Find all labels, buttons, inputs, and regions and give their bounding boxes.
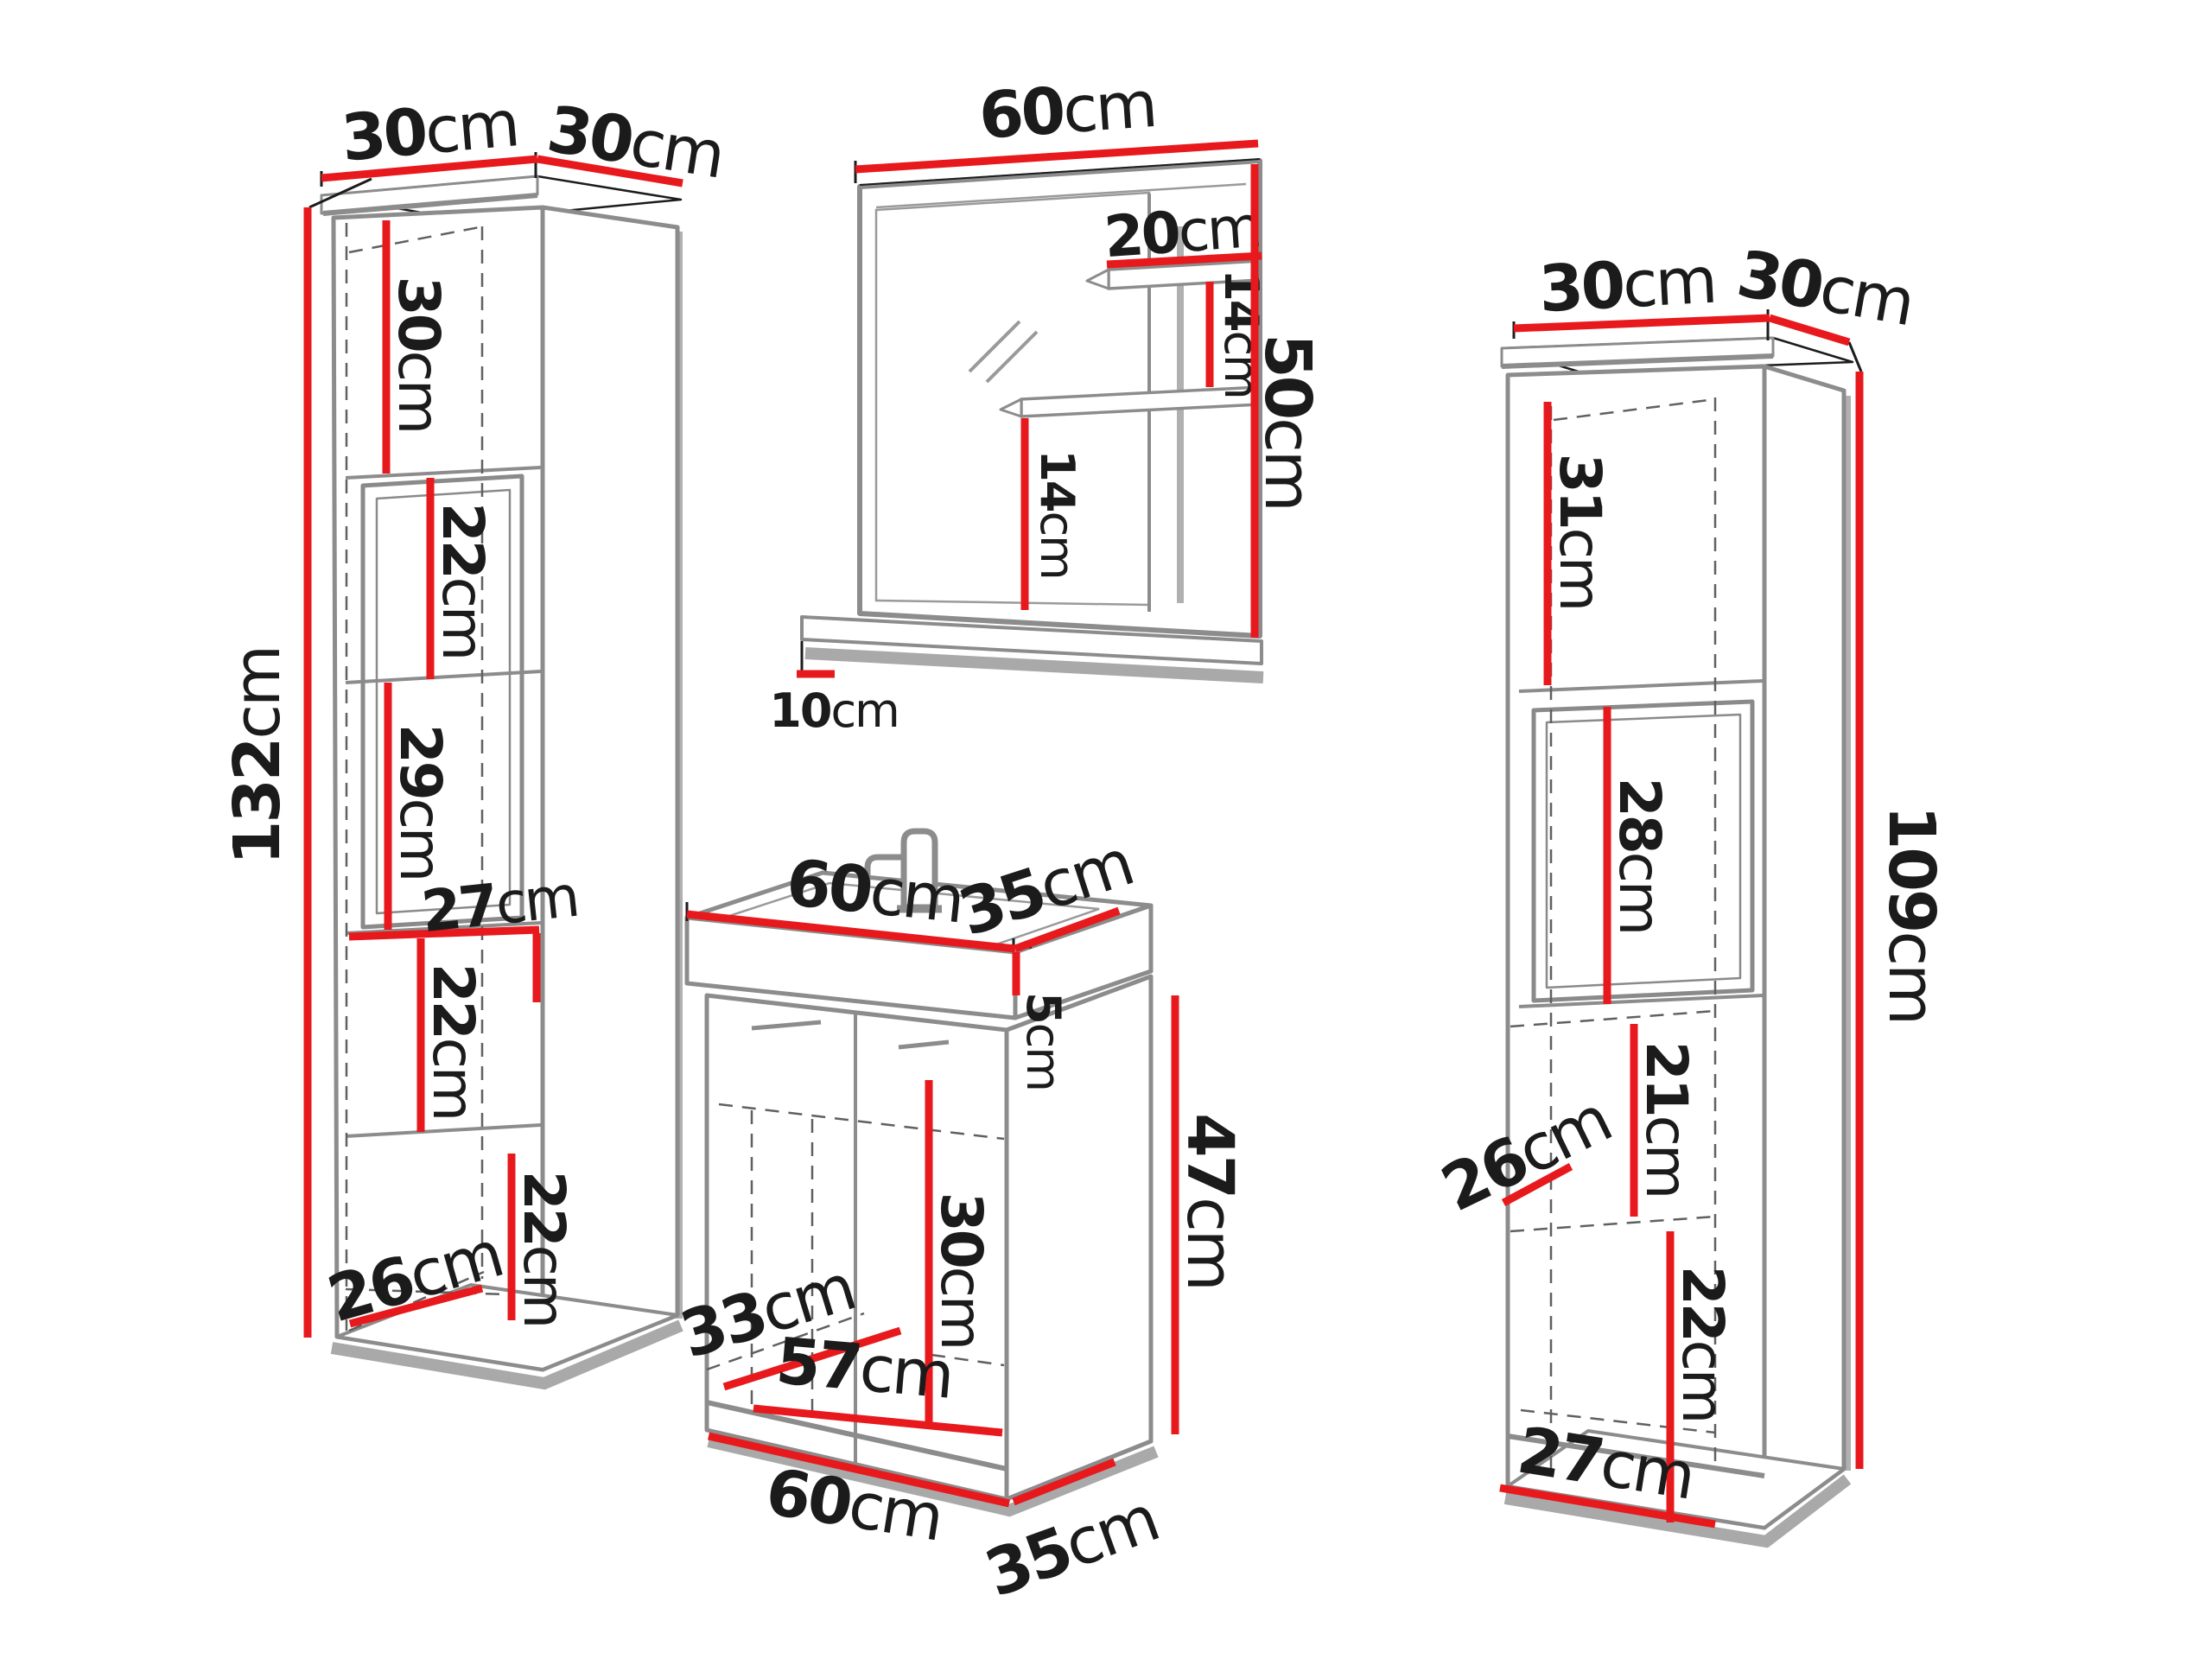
furniture-dimension-diagram: 30cm 30cm 132cm 30cm 22cm 29cm 27cm xyxy=(0,0,2212,1659)
dim-label-mirror-ledge-depth: 10cm xyxy=(769,683,898,738)
dim-label-right-section1: 21cm xyxy=(1634,1041,1700,1197)
right-cabinet-side-face xyxy=(1764,366,1844,1528)
dim-label-vanity-inner-width: 57cm xyxy=(773,1324,955,1413)
dim-label-right-top-width: 30cm xyxy=(1537,244,1717,327)
dim-right-top-width: 30cm xyxy=(1514,244,1770,328)
dim-left-height: 132cm xyxy=(220,207,308,1338)
dim-mirror-shelf-width: 20cm xyxy=(1102,193,1262,270)
dim-label-left-top-width: 30cm xyxy=(339,86,520,175)
dim-label-right-height: 109cm xyxy=(1874,805,1948,1023)
dim-left-top-depth: 30cm xyxy=(537,92,728,194)
dim-label-right-top-depth: 30cm xyxy=(1732,237,1918,340)
dim-label-right-niche-height: 31cm xyxy=(1548,454,1614,609)
dim-label-left-section4: 22cm xyxy=(512,1171,578,1326)
dim-right-section1: 21cm xyxy=(1634,1024,1700,1217)
dim-left-top-width: 30cm xyxy=(321,86,537,178)
dim-label-vanity-basin-height: 5cm xyxy=(1017,992,1071,1090)
dim-label-left-niche-height: 30cm xyxy=(386,276,453,432)
dim-label-mirror-shelf-width: 20cm xyxy=(1102,193,1262,270)
right-cabinet-extension-line xyxy=(1849,342,1861,372)
vanity-unit: 60cm 35cm 5cm 47cm 30cm 33cm 57cm 60cm xyxy=(672,826,1247,1612)
dim-label-right-section2: 22cm xyxy=(1670,1266,1737,1421)
diagram-page: 30cm 30cm 132cm 30cm 22cm 29cm 27cm xyxy=(0,0,2212,1659)
dim-left-section3: 22cm xyxy=(421,938,487,1132)
left-cabinet: 30cm 30cm 132cm 30cm 22cm 29cm 27cm xyxy=(220,86,728,1383)
dim-label-mirror-width: 60cm xyxy=(976,67,1157,154)
dim-label-left-section2: 29cm xyxy=(388,724,454,880)
dim-mirror-width: 60cm xyxy=(855,67,1258,169)
dim-label-left-section3: 22cm xyxy=(421,963,487,1119)
dim-label-left-top-depth: 30cm xyxy=(543,92,728,194)
dim-right-height: 109cm xyxy=(1859,372,1948,1469)
dim-vanity-body-height: 47cm xyxy=(1173,995,1247,1434)
dim-label-right-door-height: 28cm xyxy=(1607,778,1674,933)
dim-label-mirror-gap-bottom: 14cm xyxy=(1031,449,1085,578)
dim-label-mirror-height: 50cm xyxy=(1250,334,1325,510)
right-cabinet: 30cm 30cm 109cm 31cm 28cm 21cm 26cm 22c xyxy=(1431,237,1948,1541)
dim-label-vanity-inner-height: 30cm xyxy=(929,1192,995,1348)
dim-right-top-depth: 30cm xyxy=(1732,237,1918,342)
dim-mirror-ledge-depth: 10cm xyxy=(769,674,898,738)
dim-label-vanity-body-height: 47cm xyxy=(1173,1113,1247,1289)
dim-label-left-section1: 22cm xyxy=(430,503,497,658)
dim-label-left-height: 132cm xyxy=(220,647,295,865)
mirror-unit: 60cm 20cm 14cm 14cm 50cm 10cm xyxy=(769,67,1325,738)
dim-left-section1: 22cm xyxy=(430,478,497,679)
dim-left-section4: 22cm xyxy=(512,1154,578,1326)
